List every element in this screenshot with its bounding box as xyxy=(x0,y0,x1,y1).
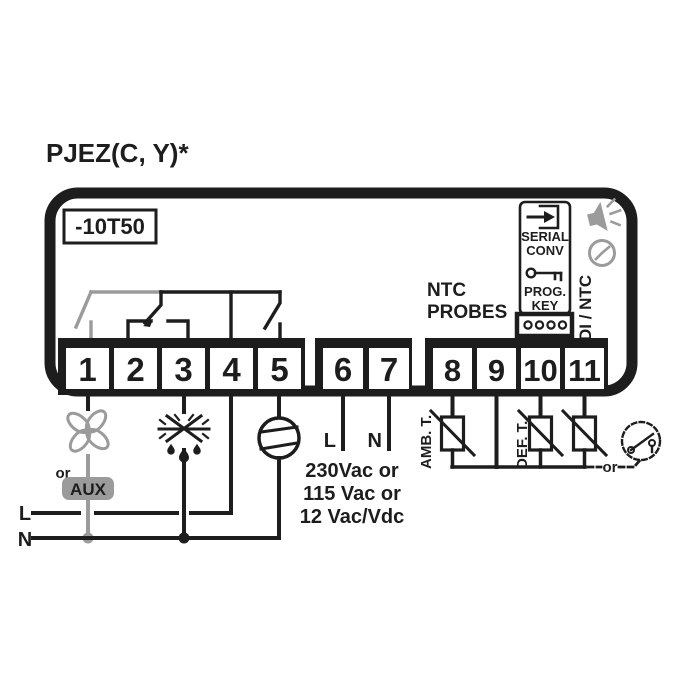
terminal-6: 6 xyxy=(334,351,352,388)
output-wiring: or AUX L N xyxy=(18,395,299,551)
neutral-rail-label: N xyxy=(18,529,32,551)
power-neutral-label: N xyxy=(368,430,382,452)
prog-key-label-line2: KEY xyxy=(532,298,559,313)
terminal-2: 2 xyxy=(126,351,144,388)
line-rail-label: L xyxy=(19,503,31,525)
terminal-10: 10 xyxy=(523,353,557,388)
or-di-label: or xyxy=(603,459,618,476)
door-switch-icon xyxy=(622,422,660,460)
page-title: PJEZ(C, Y)* xyxy=(46,138,189,168)
fan-icon xyxy=(64,407,111,454)
voltage-line1: 230Vac or xyxy=(305,460,399,482)
ambient-probe-label: AMB. T. xyxy=(418,415,435,469)
power-supply-wiring: L N 230Vac or 115 Vac or 12 Vac/Vdc xyxy=(300,395,405,528)
aux-badge: AUX xyxy=(62,477,114,500)
clock-icon xyxy=(590,241,615,266)
probe-wiring: AMB. T. DEF. T. or xyxy=(418,395,660,476)
model-range-label: -10T50 xyxy=(75,214,145,239)
terminal-7: 7 xyxy=(380,351,398,388)
model-range-box: -10T50 xyxy=(64,210,156,243)
terminal-5: 5 xyxy=(270,351,288,388)
power-line-label: L xyxy=(324,430,336,452)
terminal-strip-power: 6 7 xyxy=(315,338,412,395)
terminal-9: 9 xyxy=(488,353,505,388)
voltage-line3: 12 Vac/Vdc xyxy=(300,506,405,528)
serial-prog-key-box: SERIAL CONV PROG. KEY xyxy=(520,202,570,314)
4pin-connector xyxy=(517,314,572,336)
terminal-3: 3 xyxy=(174,351,192,388)
terminal-1: 1 xyxy=(78,351,96,388)
serial-label-line2: CONV xyxy=(526,243,564,258)
di-ntc-label: DI / NTC xyxy=(576,275,595,341)
terminal-strip-relays: 1 2 3 4 5 xyxy=(58,338,305,395)
voltage-line2: 115 Vac or xyxy=(303,483,401,505)
ntc-probes-line2: PROBES xyxy=(427,302,507,323)
terminal-8: 8 xyxy=(444,353,461,388)
ntc-probes-line1: NTC xyxy=(427,280,466,301)
terminal-11: 11 xyxy=(568,353,601,388)
wiring-diagram-page: PJEZ(C, Y)* -10T50 xyxy=(0,0,700,700)
aux-label: AUX xyxy=(70,480,107,499)
pjez-wiring-diagram: PJEZ(C, Y)* -10T50 xyxy=(0,0,700,700)
prog-key-label-line1: PROG. xyxy=(524,284,566,299)
compressor-icon xyxy=(259,418,299,458)
serial-label-line1: SERIAL xyxy=(521,229,569,244)
terminal-strip-probes: 8 9 10 11 xyxy=(425,338,608,395)
terminal-4: 4 xyxy=(222,351,241,388)
